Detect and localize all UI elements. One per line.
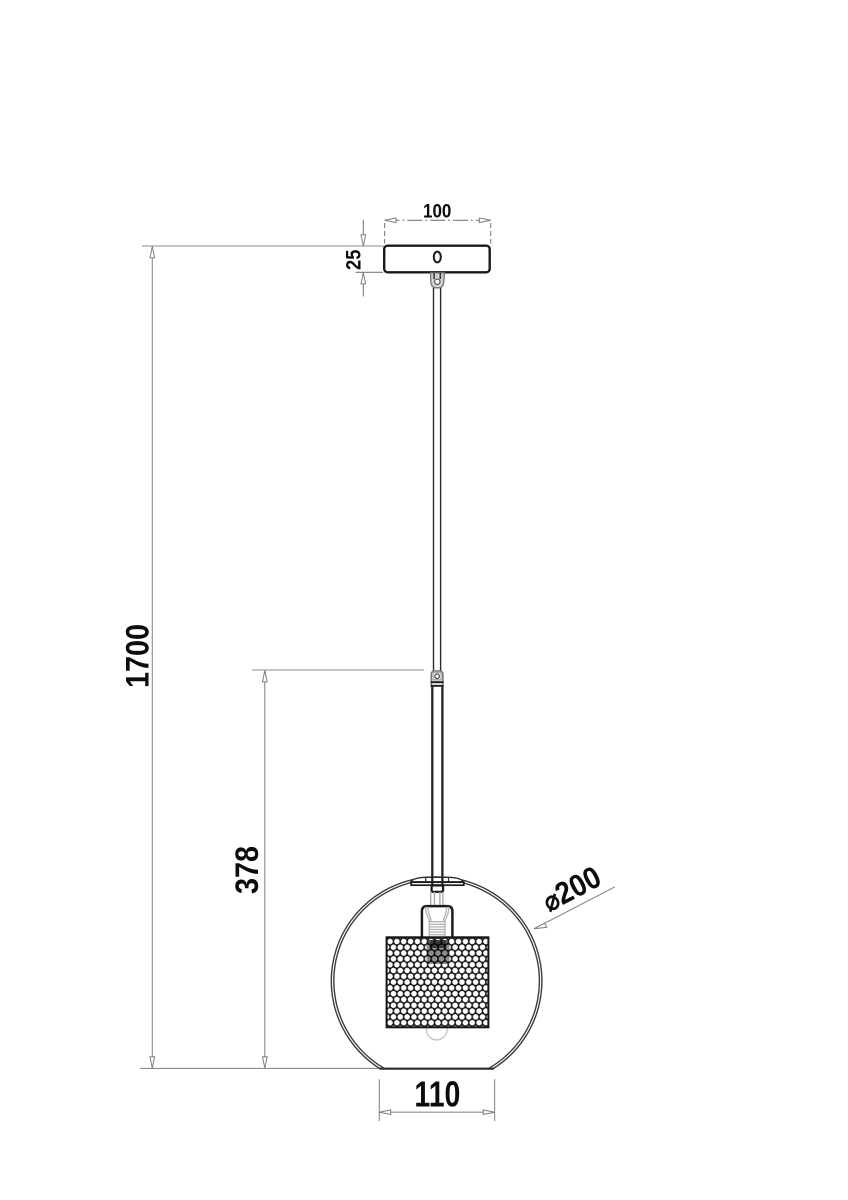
svg-text:25: 25 <box>342 250 365 270</box>
svg-text:1700: 1700 <box>120 624 156 688</box>
svg-text:100: 100 <box>423 199 451 221</box>
svg-text:378: 378 <box>230 846 266 894</box>
svg-text:110: 110 <box>414 1073 460 1114</box>
